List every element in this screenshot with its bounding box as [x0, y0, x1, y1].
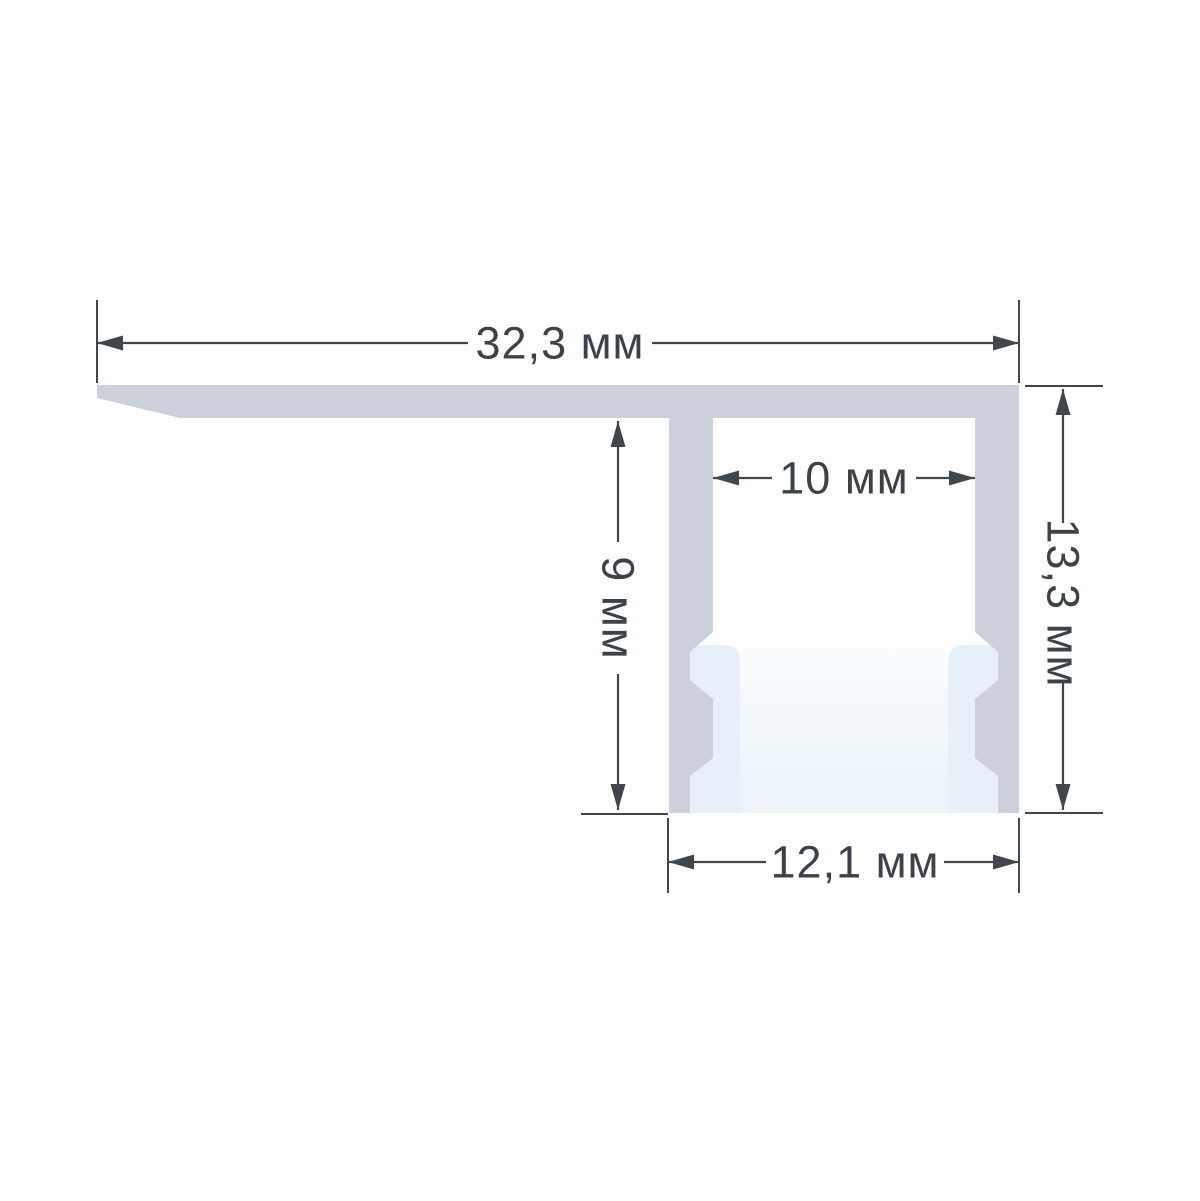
arrowhead-left-icon	[713, 471, 739, 486]
dimension-label-web-height: 9 мм	[593, 556, 644, 659]
arrowhead-up-icon	[611, 421, 626, 447]
arrowhead-right-icon	[993, 336, 1019, 351]
arrowhead-down-icon	[611, 784, 626, 810]
diagram-canvas: 32,3 мм 10 мм 9 мм 13,3 мм	[0, 0, 1200, 1201]
arrowhead-right-icon	[949, 471, 975, 486]
profile-cross-section-diagram: 32,3 мм 10 мм 9 мм 13,3 мм	[0, 0, 1200, 1201]
dimension-web-height: 9 мм	[581, 421, 668, 814]
dimension-label-inner-width: 10 мм	[779, 453, 908, 504]
arrowhead-left-icon	[97, 336, 123, 351]
arrowhead-down-icon	[1056, 784, 1071, 810]
arrowhead-up-icon	[1056, 389, 1071, 415]
dimension-right-height: 13,3 мм	[1025, 386, 1103, 813]
dimension-label-right-height: 13,3 мм	[1038, 519, 1089, 688]
arrowhead-left-icon	[668, 855, 694, 870]
arrowhead-right-icon	[993, 855, 1019, 870]
dimension-label-bottom-width: 12,1 мм	[771, 837, 940, 888]
dimension-bottom-width: 12,1 мм	[668, 818, 1019, 893]
dimension-label-top-width: 32,3 мм	[476, 318, 645, 369]
dimension-top-width: 32,3 мм	[97, 300, 1019, 383]
diffuser	[688, 645, 1000, 813]
dimension-inner-width: 10 мм	[713, 453, 975, 504]
diffuser-glow	[740, 646, 948, 778]
